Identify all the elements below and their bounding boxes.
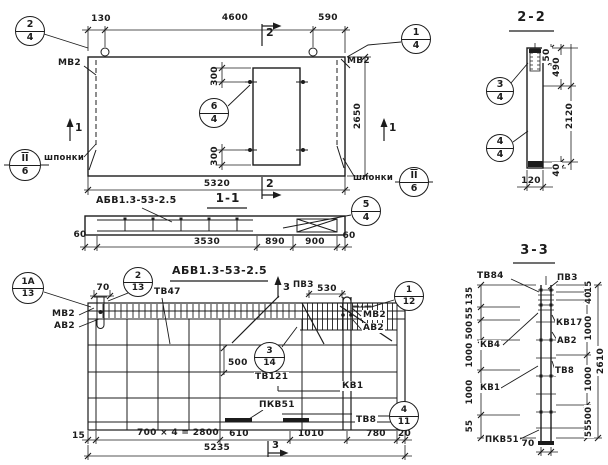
dim-1000-left-a: 1000 [465,341,475,369]
section-mark-2-top: 2 [266,28,274,38]
label-av2-plan-left: АВ2 [54,321,75,331]
detail-number: 1 [395,286,423,297]
dim-610: 610 [227,429,251,439]
detail-number: 4 [390,406,418,417]
callout-1a-13: 1А 13 [12,272,44,304]
dim-500-plan: 500 [227,358,249,368]
section33-title: 3-3 [516,246,554,256]
label-av2-plan-right: АВ2 [362,323,385,333]
dim-2610: 2610 [596,346,606,376]
dim-300-bottom: 300 [210,143,220,169]
sheet-number: 4 [413,40,420,51]
dim-70-33: 70 [520,439,536,449]
dim-890: 890 [261,237,289,247]
detail-number: II [400,171,428,183]
dim-530: 530 [314,284,340,294]
dim-1010: 1010 [294,429,328,439]
label-tv8-plan: ТВ8 [355,415,377,425]
label-pkv51-33: ПКВ51 [484,435,520,445]
drawing-linework [0,0,608,465]
dim-60-right: 60 [339,231,359,241]
label-kv4: КВ4 [479,340,501,350]
sheet-number: 13 [22,289,35,299]
detail-number: 1А [13,278,43,289]
callout-6-4: 6 4 [199,98,229,128]
dim-2120: 2120 [565,101,575,131]
label-shponki-right: шпонки [353,173,393,183]
label-tv47: ТВ47 [154,287,181,297]
callout-3-14: 3 14 [254,342,285,373]
sheet-number: 6 [22,166,29,177]
label-tv84: ТВ84 [477,271,504,281]
dim-70-plan: 70 [94,283,112,293]
detail-number: II [10,154,40,166]
dim-40-33: 40 [584,293,594,305]
section11-title: 1-1 [210,193,246,203]
section-mark-3-top: 3 [283,283,290,293]
detail-number: 3 [255,347,284,358]
sheet-number: 4 [363,212,370,223]
label-mv2-plan-right: МВ2 [362,310,387,320]
dim-2650: 2650 [353,96,363,136]
label-pv3-33: ПВЗ [557,273,578,283]
callout-ii-6-left: II 6 [9,149,41,181]
label-kv1-plan: КВ1 [341,381,364,391]
dim-1000-left-b: 1000 [465,378,475,406]
detail-number: 1 [402,28,430,40]
sheet-number: 14 [263,358,276,368]
label-pkv51-plan: ПКВ51 [258,400,296,410]
sheet-number: 13 [132,283,145,293]
dim-55-bottom-left: 55 [465,419,475,433]
detail-number: 6 [200,102,228,114]
dim-130: 130 [90,14,112,24]
label-shponki-left: шпонки [44,153,84,163]
dim-490: 490 [552,55,562,79]
sheet-number: 4 [497,92,504,103]
label-mv2-left: МВ2 [58,58,81,68]
section11-panel-mark: АБВ1.3-53-2.5 [96,196,177,206]
dim-1000-right-a: 1000 [584,314,594,342]
dim-700x4: 700 × 4 = 2800 [132,428,224,438]
callout-4-4: 4 4 [486,134,514,162]
section-mark-3-bottom: 3 [272,441,279,451]
callout-2-4: 2 4 [15,16,45,46]
section22-title: 2-2 [512,13,552,23]
detail-number: 4 [487,137,513,149]
label-kv1-33: КВ1 [479,383,501,393]
callout-ii-6-right: II 6 [399,167,429,197]
dim-300-top: 300 [210,63,220,89]
sheet-number: 4 [497,149,504,160]
dim-590: 590 [314,13,342,23]
label-av2-33: АВ2 [556,336,578,346]
dim-60-left: 60 [70,230,90,240]
dim-4600: 4600 [212,13,258,23]
callout-1-12: 1 12 [394,281,424,311]
detail-number: 3 [487,80,513,92]
dim-3530: 3530 [189,237,225,247]
detail-number: 2 [124,272,152,283]
sheet-number: 11 [398,417,411,427]
dim-500-left: 500 [465,319,475,341]
callout-2-13: 2 13 [123,267,153,297]
callout-3-4: 3 4 [486,77,514,105]
callout-1-4: 1 4 [401,24,431,54]
drawing-sheet: 130 4600 590 2 2 МВ2 МВ2 2650 300 300 шп… [0,0,608,465]
sheet-number: 4 [211,114,218,125]
section-mark-1-left: 1 [75,123,83,133]
dim-55-top: 55 [465,306,475,320]
plan-title: АБВ1.3-53-2.5 [172,266,267,276]
label-pv3-plan: ПВЗ [293,280,314,290]
label-mv2-plan-left: МВ2 [52,309,75,319]
detail-number: 2 [16,20,44,32]
detail-number: 5 [352,200,380,212]
dim-135: 135 [465,285,475,307]
label-mv2-right: МВ2 [347,56,370,66]
sheet-number: 4 [27,32,34,43]
label-tv121: ТВ121 [254,372,289,382]
dim-15-plan: 15 [72,431,85,441]
callout-4-11: 4 11 [389,401,419,431]
dim-1000-right-b: 1000 [584,365,594,393]
dim-55-right: 55 [584,424,594,438]
sheet-number: 6 [411,183,418,194]
dim-5320: 5320 [198,179,236,189]
dim-780: 780 [362,429,390,439]
dim-120: 120 [520,176,542,186]
dim-50: 50 [542,47,552,63]
dim-5235: 5235 [196,443,238,453]
label-tv8-33: ТВ8 [554,366,575,376]
callout-5-4: 5 4 [351,196,381,226]
dim-900: 900 [301,237,329,247]
section-mark-1-right: 1 [389,123,397,133]
section-mark-2-bottom: 2 [266,179,274,189]
sheet-number: 12 [403,297,416,307]
dim-40: 40 [552,162,562,178]
label-kv17: КВ17 [555,318,583,328]
